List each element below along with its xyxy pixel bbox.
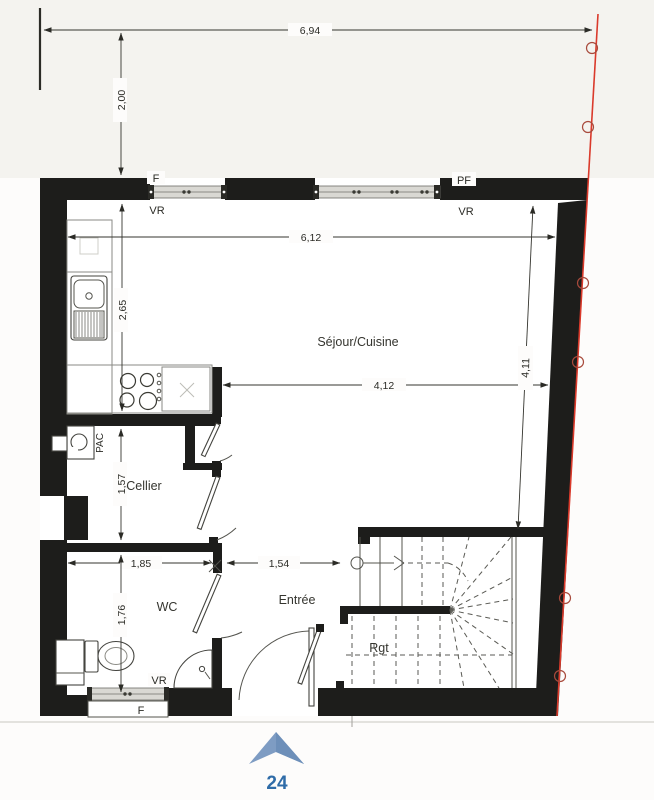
dim-label: 6,94 <box>300 25 321 37</box>
window-dot <box>315 191 318 194</box>
wall-bottom-right <box>318 688 546 716</box>
pac-symbol-gap <box>72 447 78 452</box>
room-label-entree: Entrée <box>279 593 316 607</box>
wall-cellier-right <box>185 418 195 467</box>
door-hinge-block <box>316 624 324 632</box>
shutter-label: VR <box>458 206 473 218</box>
north-arrow-shade <box>276 732 304 764</box>
shutter-label: VR <box>149 205 164 217</box>
window-sill <box>88 701 168 717</box>
wall-wc-right-lower <box>212 638 222 688</box>
window-dot <box>150 191 153 194</box>
window-label: F <box>153 173 160 185</box>
dim-label: 6,12 <box>301 232 322 244</box>
wall-stair-mid <box>340 606 450 614</box>
wall-left-lower <box>40 540 67 716</box>
door-hinge-block <box>209 537 218 544</box>
wall-top-pier <box>225 178 315 200</box>
dim-label: 1,76 <box>116 605 128 626</box>
north-arrow <box>249 732 304 764</box>
window-handle <box>123 692 126 695</box>
shutter-label: VR <box>151 675 166 687</box>
dim-label: 4,12 <box>374 380 395 392</box>
door-hinge-block <box>212 461 221 468</box>
basin-faucet <box>199 666 204 671</box>
wall-bottom-mid <box>168 688 232 716</box>
wall-stair-mid-notch <box>340 606 348 624</box>
window-handle <box>395 190 398 193</box>
window-handle <box>187 190 190 193</box>
dim-label: 1,85 <box>131 558 152 570</box>
window-handle <box>128 692 131 695</box>
page-number: 24 <box>266 773 288 794</box>
wall-stair-top <box>358 527 545 537</box>
room-label-cellier: Cellier <box>126 479 161 493</box>
window-handle <box>425 190 428 193</box>
window-label: PF <box>457 175 471 187</box>
window-label: F <box>138 705 145 717</box>
door-hinge-block <box>336 681 344 689</box>
wall-kitchen-stub <box>212 367 222 417</box>
dim-label: 2,00 <box>116 90 128 111</box>
wall-bottom-left <box>40 695 88 716</box>
room-label-wc: WC <box>157 600 178 614</box>
floor-plan-page: F VR PF VR F VR <box>0 0 654 800</box>
window-dot <box>223 191 226 194</box>
dim-label: 1,54 <box>269 558 290 570</box>
room-label-sejour: Séjour/Cuisine <box>317 335 398 349</box>
wall-wc-top <box>40 543 222 552</box>
window-dot <box>436 191 439 194</box>
duct-shaft <box>56 640 84 685</box>
floor-plan: F VR PF VR F VR <box>0 0 654 800</box>
window-handle <box>182 190 185 193</box>
window-cap <box>87 687 92 701</box>
dim-label: 4,11 <box>520 358 533 378</box>
window-cap <box>164 687 169 701</box>
pac-label: PAC <box>95 433 106 453</box>
wall-left-offset <box>64 496 88 540</box>
window-handle <box>390 190 393 193</box>
wall-niche <box>52 436 67 451</box>
window-handle <box>357 190 360 193</box>
window-handle <box>420 190 423 193</box>
toilet-tank <box>85 641 98 672</box>
toilet-bowl <box>98 642 134 671</box>
window-handle <box>352 190 355 193</box>
room-label-storage: Rgt <box>369 641 389 655</box>
dim-label: 2,65 <box>117 300 129 321</box>
